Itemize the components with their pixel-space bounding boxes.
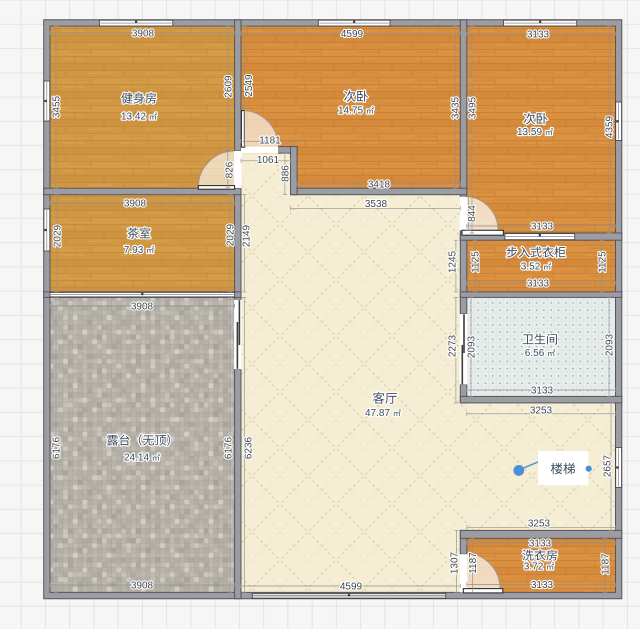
svg-text:2093: 2093 (467, 335, 478, 358)
svg-text:4599: 4599 (341, 29, 364, 40)
svg-text:3418: 3418 (368, 180, 391, 191)
svg-text:2029: 2029 (226, 223, 237, 246)
svg-text:14.75: 14.75 (338, 106, 363, 117)
svg-text:47.87: 47.87 (365, 408, 390, 419)
svg-text:3133: 3133 (529, 539, 552, 550)
svg-text:3.72: 3.72 (524, 562, 544, 573)
svg-text:844: 844 (467, 205, 478, 222)
svg-text:13.59: 13.59 (517, 127, 542, 138)
svg-text:3133: 3133 (531, 580, 554, 591)
svg-text:3908: 3908 (131, 302, 154, 313)
svg-text:1125: 1125 (598, 251, 609, 273)
svg-text:6176: 6176 (224, 436, 235, 459)
svg-text:6176: 6176 (52, 436, 63, 459)
svg-text:1061: 1061 (257, 155, 280, 166)
svg-text:3.52: 3.52 (521, 262, 541, 273)
svg-text:3538: 3538 (365, 199, 388, 210)
svg-text:2273: 2273 (448, 334, 459, 357)
svg-text:3133: 3133 (531, 222, 554, 233)
svg-text:1181: 1181 (259, 136, 281, 147)
svg-text:13.42: 13.42 (121, 112, 146, 123)
svg-text:1187: 1187 (468, 552, 479, 574)
svg-text:1245: 1245 (448, 250, 459, 273)
svg-text:1125: 1125 (471, 251, 482, 273)
svg-text:6236: 6236 (244, 436, 255, 459)
svg-text:3435: 3435 (451, 96, 462, 119)
svg-text:3908: 3908 (132, 29, 155, 40)
svg-text:3455: 3455 (52, 95, 63, 118)
svg-text:1187: 1187 (601, 553, 612, 575)
svg-text:1307: 1307 (450, 551, 461, 574)
svg-text:3133: 3133 (527, 279, 550, 290)
svg-text:4599: 4599 (340, 582, 363, 593)
svg-text:3495: 3495 (468, 96, 479, 119)
svg-text:3908: 3908 (124, 199, 147, 210)
svg-text:2029: 2029 (53, 224, 64, 247)
svg-text:3253: 3253 (528, 519, 551, 530)
svg-text:886: 886 (281, 165, 292, 182)
svg-text:24.14: 24.14 (124, 453, 149, 464)
svg-text:6.56: 6.56 (525, 348, 545, 359)
svg-text:7.93: 7.93 (124, 245, 144, 256)
svg-text:4359: 4359 (605, 115, 616, 138)
svg-text:826: 826 (224, 161, 235, 178)
svg-text:2549: 2549 (244, 74, 255, 97)
svg-text:3133: 3133 (531, 386, 554, 397)
svg-text:2609: 2609 (224, 75, 235, 98)
svg-text:2657: 2657 (603, 454, 614, 477)
svg-text:3908: 3908 (131, 581, 154, 592)
svg-text:3253: 3253 (530, 406, 553, 417)
svg-text:2093: 2093 (605, 333, 616, 356)
svg-text:2149: 2149 (242, 224, 253, 247)
svg-text:3133: 3133 (527, 30, 550, 41)
